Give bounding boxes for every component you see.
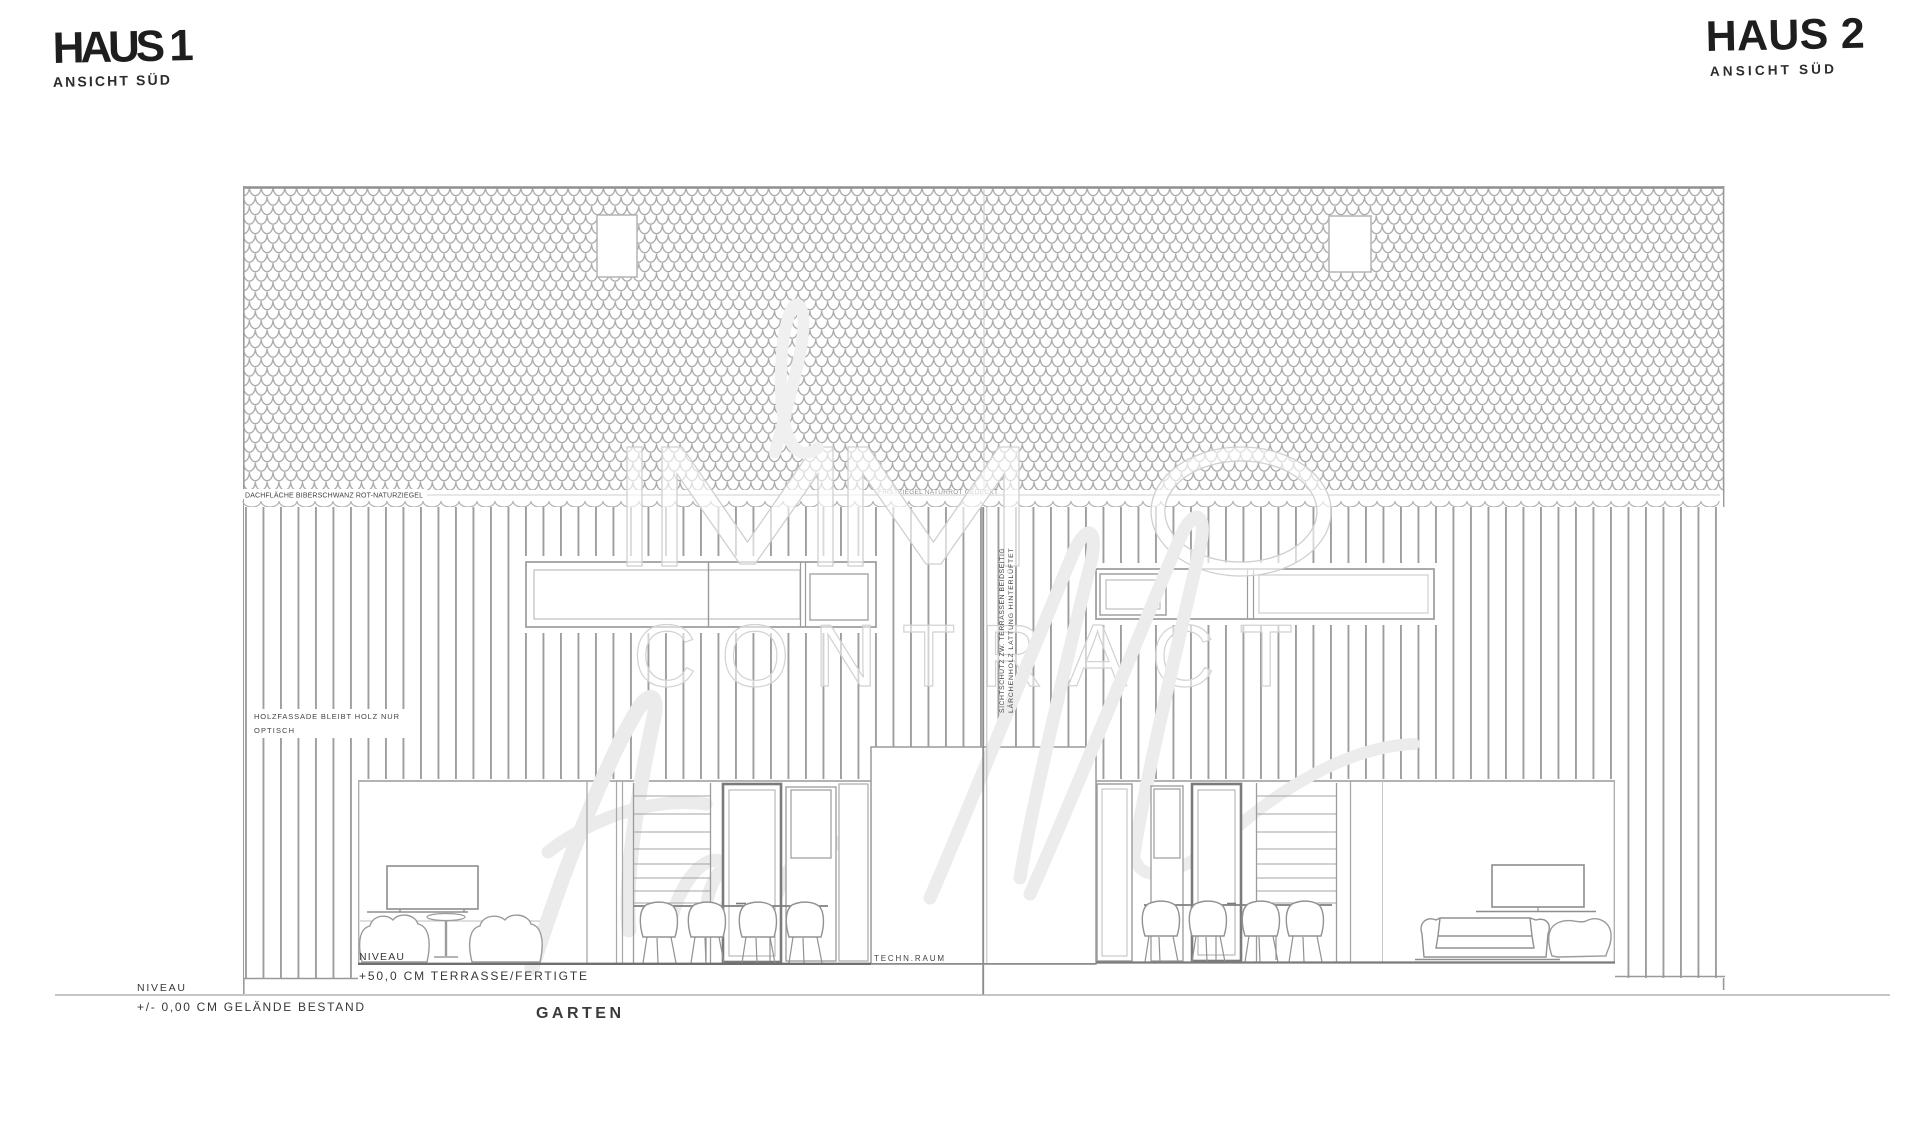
svg-text:+/- 0,00 CM GELÄNDE BESTAND: +/- 0,00 CM GELÄNDE BESTAND — [137, 1000, 364, 1014]
svg-text:OPTISCH: OPTISCH — [254, 726, 294, 735]
svg-text:ANSICHT SÜD: ANSICHT SÜD — [1710, 61, 1835, 79]
svg-text:LÄRCHENHOLZ LATTUNG HINTERLÜFT: LÄRCHENHOLZ LATTUNG HINTERLÜFTET — [1007, 548, 1015, 713]
svg-text:NIVEAU: NIVEAU — [137, 982, 185, 994]
svg-text:DACHFLÄCHE BIBERSCHWANZ ROT-NA: DACHFLÄCHE BIBERSCHWANZ ROT-NATURZIEGEL — [245, 492, 423, 500]
svg-text:ANSICHT SÜD: ANSICHT SÜD — [53, 72, 170, 90]
svg-text:NIVEAU: NIVEAU — [359, 951, 404, 963]
svg-text:SICHTSCHUTZ ZW. TERRASSEN BEID: SICHTSCHUTZ ZW. TERRASSEN BEIDSEITIG — [999, 548, 1006, 713]
svg-text:HAUS 2: HAUS 2 — [1705, 10, 1865, 61]
svg-text:+50,0 CM TERRASSE/FERTIGTE: +50,0 CM TERRASSE/FERTIGTE — [359, 969, 587, 983]
svg-text:HOLZFASSADE BLEIBT HOLZ NUR: HOLZFASSADE BLEIBT HOLZ NUR — [254, 712, 400, 721]
svg-text:GARTEN: GARTEN — [536, 1005, 621, 1022]
svg-text:HAUS 1: HAUS 1 — [52, 21, 194, 73]
